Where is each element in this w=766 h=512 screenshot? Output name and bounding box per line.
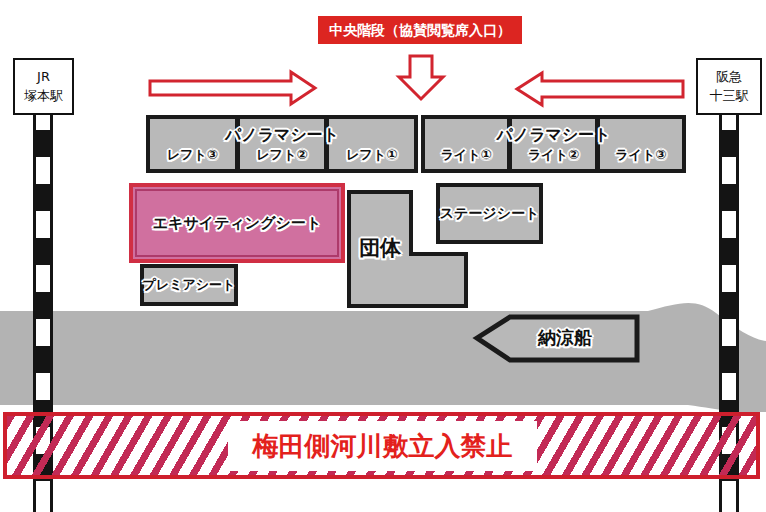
station-hankyu-juso: 阪急 十三駅 (696, 58, 762, 115)
stage-seat-area: ステージシート (436, 183, 543, 244)
station-label-line2: 十三駅 (698, 87, 760, 106)
entrance-down-arrow-icon (399, 56, 443, 99)
restricted-zone-label: 梅田側河川敷立入禁止 (228, 421, 537, 471)
premium-seat-area: プレミアシート (140, 264, 238, 306)
panorama-cell-label: ライト③ (600, 146, 682, 164)
flow-arrow-right-icon (150, 72, 315, 104)
premium-seat-label: プレミアシート (143, 276, 236, 294)
flow-arrow-left-icon (517, 73, 683, 105)
station-label-line2: 塚本駅 (15, 87, 72, 106)
station-jr-tsukamoto: JR 塚本駅 (13, 58, 74, 115)
panorama-cell-label: レフト③ (150, 146, 235, 164)
stage-seat-label: ステージシート (440, 205, 540, 223)
panorama-left-title: パノラマシート (150, 125, 414, 146)
panorama-right-title: パノラマシート (425, 125, 682, 146)
station-label-line1: JR (15, 68, 72, 87)
panorama-right-block: パノラマシート ライト① ライト② ライト③ (421, 115, 686, 173)
exciting-seat-label: エキサイティングシート (153, 214, 322, 233)
boat-label: 納涼船 (510, 326, 620, 350)
panorama-cell-label: レフト② (240, 146, 325, 164)
panorama-cell-label: ライト② (512, 146, 594, 164)
exciting-seat-area: エキサイティングシート (129, 183, 345, 263)
panorama-left-block: パノラマシート レフト③ レフト② レフト① (146, 115, 418, 173)
exciting-seat-inner: エキサイティングシート (135, 189, 339, 257)
restricted-zone-plate: 梅田側河川敷立入禁止 (228, 421, 537, 471)
group-seat-label: 団体 (349, 234, 411, 262)
seating-map: 中央階段（協賛閲覧席入口） JR 塚本駅 阪急 十三駅 パノラマシート レフト③… (0, 0, 766, 512)
panorama-cell-label: ライト① (425, 146, 507, 164)
entrance-banner: 中央階段（協賛閲覧席入口） (318, 16, 522, 44)
station-label-line1: 阪急 (698, 68, 760, 87)
panorama-cell-label: レフト① (329, 146, 414, 164)
